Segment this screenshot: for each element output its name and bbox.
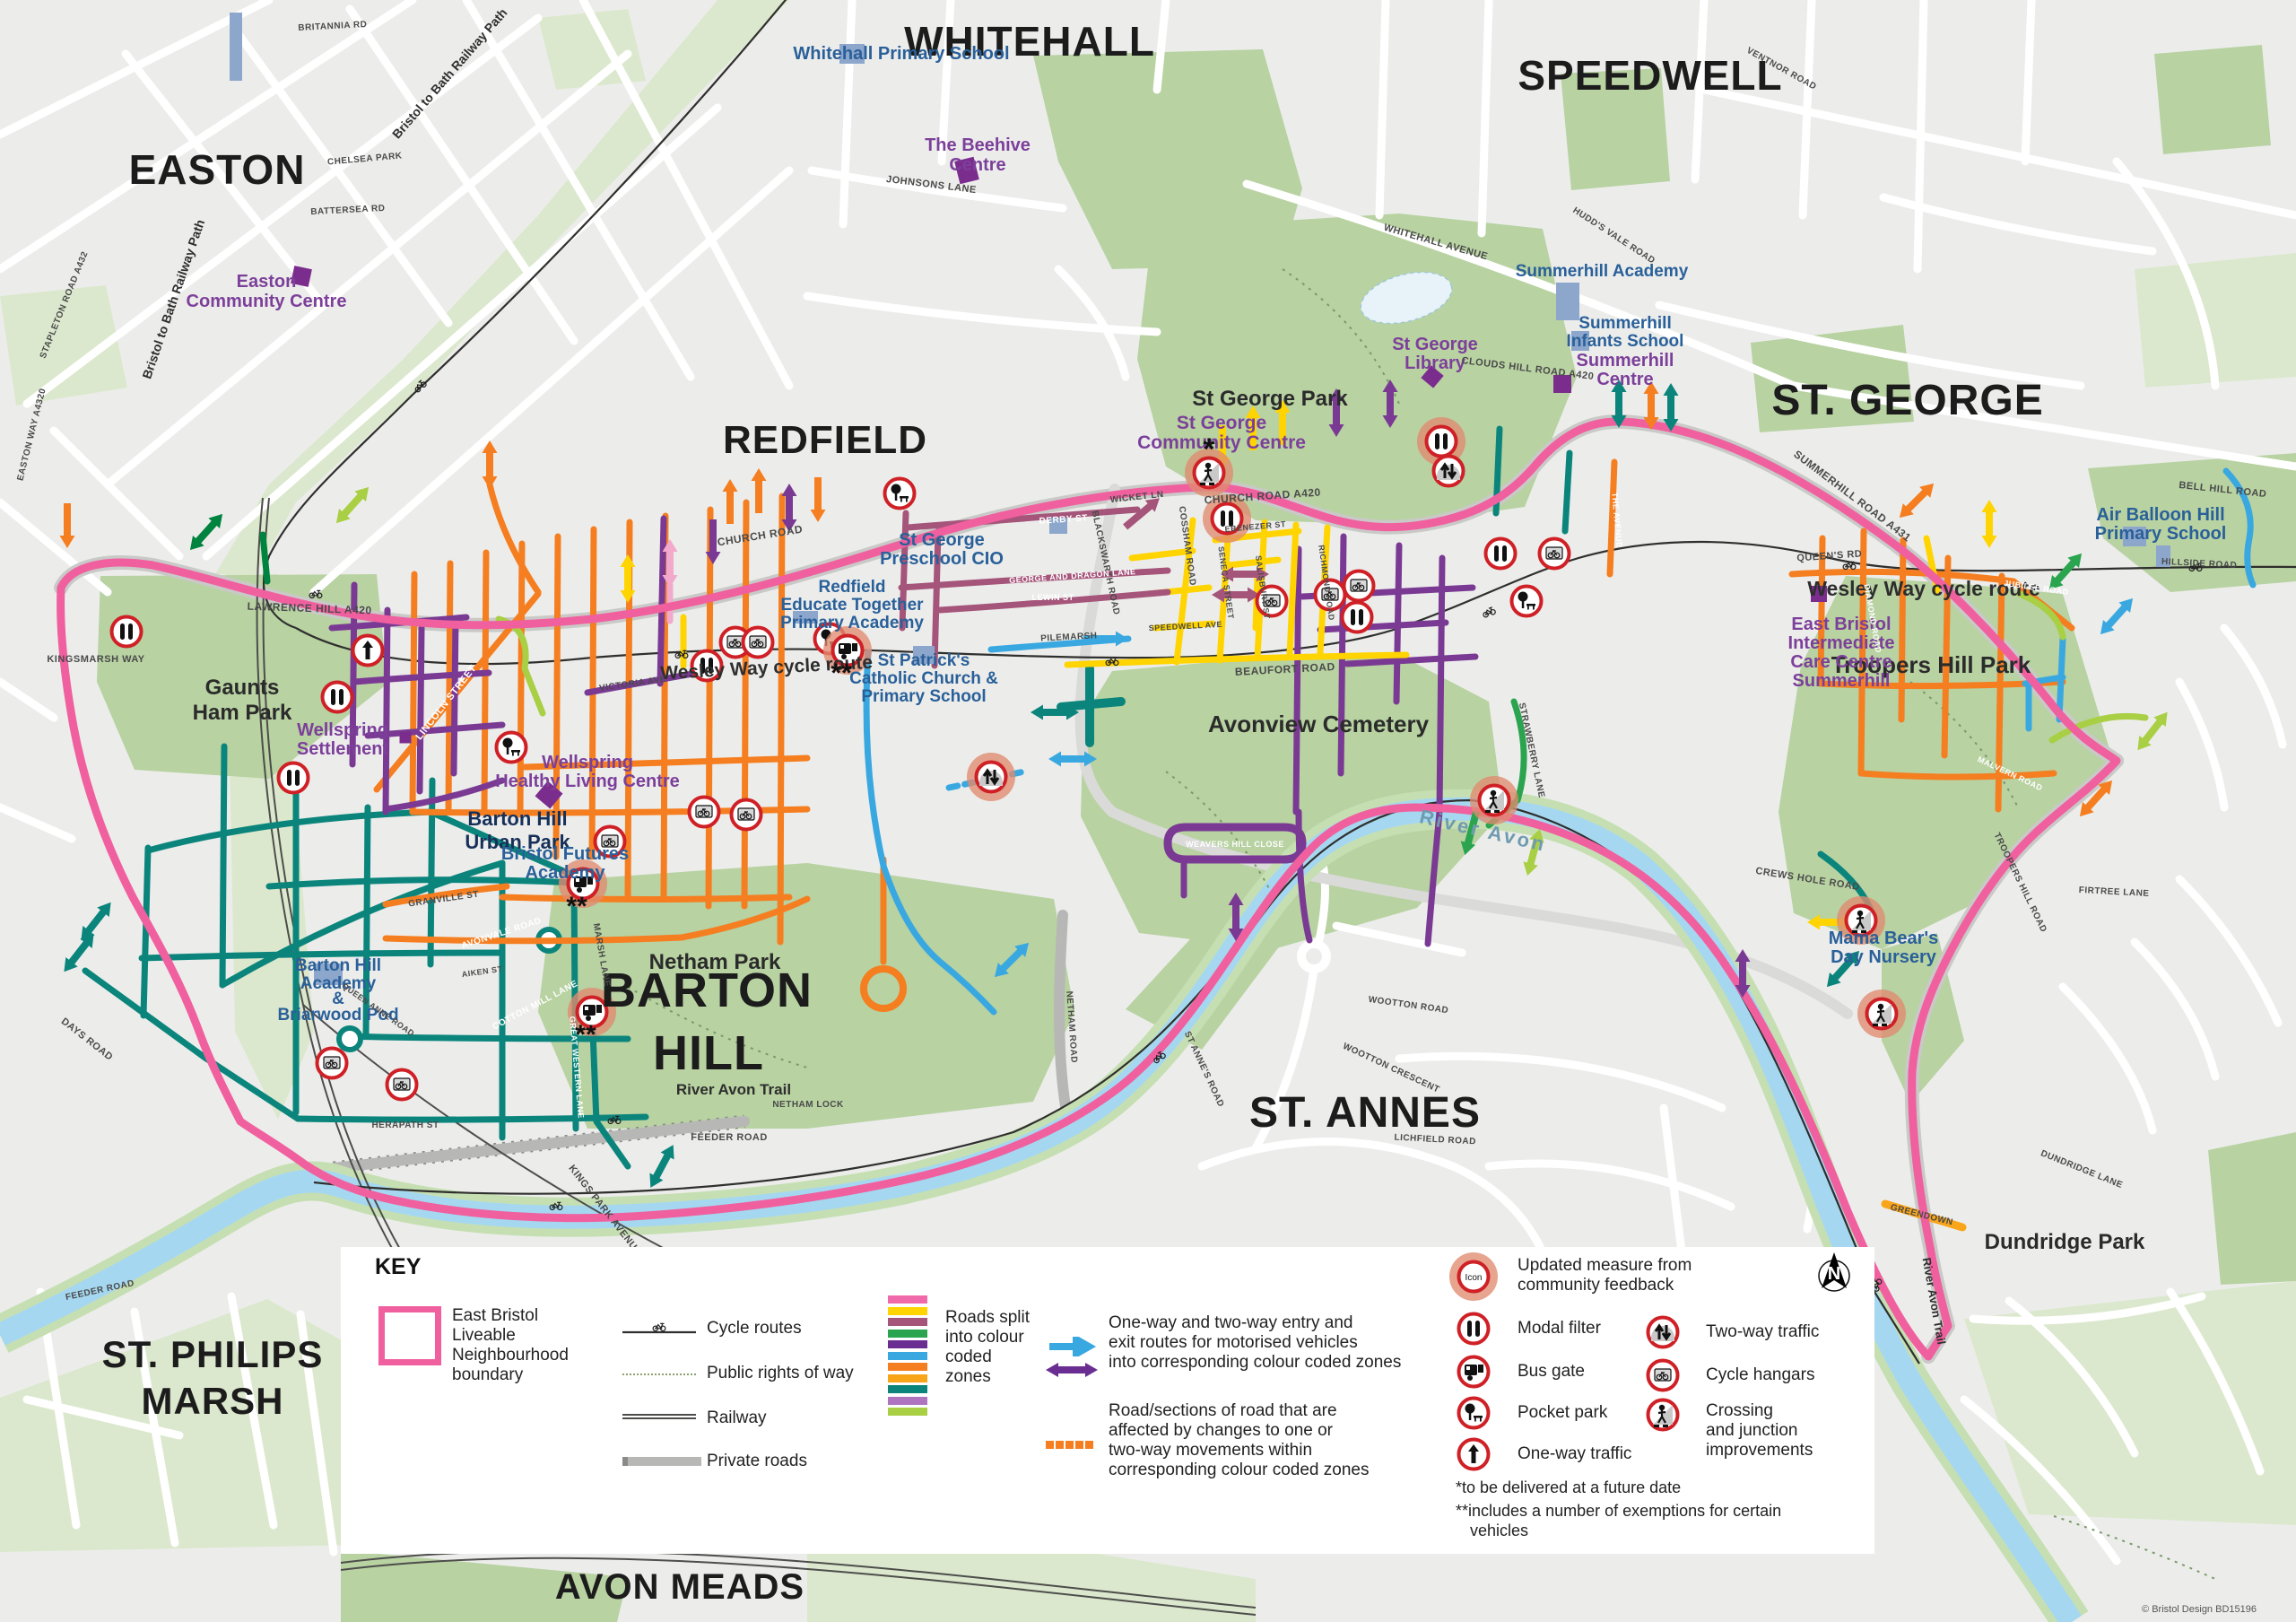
entry-line1: One-way and two-way entry and bbox=[1109, 1313, 1401, 1333]
boundary-line4: boundary bbox=[452, 1365, 569, 1385]
entry-line2: exit routes for motorised vehicles bbox=[1109, 1333, 1401, 1353]
label-netham-lock: NETHAM LOCK bbox=[772, 1100, 844, 1110]
label-st-george-park: St George Park bbox=[1192, 387, 1348, 411]
one-way-arrow-swatch bbox=[1046, 1337, 1098, 1356]
zone-swatch bbox=[888, 1374, 927, 1382]
label-st-philips: ST. PHILIPS bbox=[102, 1333, 324, 1375]
label-bristol-futures: Bristol Futures bbox=[501, 844, 629, 864]
map-stage: EASTONWHITEHALLSPEEDWELLREDFIELDST. GEOR… bbox=[0, 0, 2296, 1622]
entry-routes-label: One-way and two-way entry and exit route… bbox=[1109, 1313, 1401, 1373]
zone-swatch bbox=[888, 1307, 927, 1315]
modal-icon bbox=[323, 683, 352, 712]
boundary-line2: Liveable bbox=[452, 1326, 569, 1346]
label-library: Library bbox=[1405, 353, 1466, 373]
label-summerhill: Summerhill bbox=[1577, 351, 1674, 371]
building-marker bbox=[400, 732, 412, 744]
boundary-label: East Bristol Liveable Neighbourhood boun… bbox=[452, 1306, 569, 1385]
zones-label: Roads split into colour coded zones bbox=[945, 1308, 1030, 1387]
label-st-george: St George bbox=[1392, 335, 1478, 354]
label-weavers-hill-close: WEAVERS HILL CLOSE bbox=[1186, 840, 1284, 849]
label-wellspring: Wellspring bbox=[297, 720, 388, 740]
private-roads-label: Private roads bbox=[707, 1452, 807, 1471]
label-primary-school: Primary School bbox=[2095, 524, 2227, 544]
label-infants-school: Infants School bbox=[1567, 332, 1684, 351]
label-centre: Centre bbox=[949, 155, 1005, 175]
zone-swatch bbox=[888, 1397, 927, 1405]
prow-label: Public rights of way bbox=[707, 1364, 854, 1383]
pocket-icon bbox=[497, 733, 526, 763]
icon-label: Icon bbox=[1465, 1273, 1483, 1283]
hangar-icon bbox=[387, 1070, 417, 1100]
crossing-line1: Crossing bbox=[1706, 1401, 1813, 1421]
label-redfield: REDFIELD bbox=[723, 418, 927, 462]
boundary-swatch bbox=[378, 1306, 441, 1365]
label-mark: * bbox=[1203, 432, 1215, 467]
label-st-patrick-s: St Patrick's bbox=[878, 651, 970, 670]
compass-letter: N bbox=[1828, 1264, 1840, 1284]
boundary-line1: East Bristol bbox=[452, 1306, 569, 1326]
label-avonview-cemetery: Avonview Cemetery bbox=[1208, 711, 1430, 737]
label-preschool-cio: Preschool CIO bbox=[880, 549, 1004, 569]
modal-icon bbox=[1486, 539, 1516, 569]
building-marker bbox=[230, 13, 242, 81]
label-community-centre: Community Centre bbox=[1137, 432, 1306, 453]
two-way-traffic-label: Two-way traffic bbox=[1706, 1322, 1819, 1342]
label-ham-park: Ham Park bbox=[193, 701, 292, 725]
pocket-park-label: Pocket park bbox=[1518, 1403, 1607, 1423]
north-compass: N bbox=[1805, 1249, 1863, 1306]
label-summerhill: Summerhill bbox=[1793, 671, 1891, 691]
zone-swatch bbox=[888, 1352, 927, 1360]
bus-gate-label: Bus gate bbox=[1518, 1362, 1585, 1382]
label-academy: Academy bbox=[526, 863, 606, 883]
label-primary-academy: Primary Academy bbox=[780, 614, 924, 632]
label-netham-park: Netham Park bbox=[649, 950, 781, 974]
crossing-line2: and junction bbox=[1706, 1421, 1813, 1441]
cycle-hangars-icon bbox=[1645, 1357, 1681, 1393]
label-whitehall-primary-school: Whitehall Primary School bbox=[793, 44, 1009, 64]
updated-measure-label: Updated measure from community feedback bbox=[1518, 1256, 1692, 1295]
footnote-1: *to be delivered at a future date bbox=[1456, 1478, 1681, 1497]
cycle-hangars-label: Cycle hangars bbox=[1706, 1365, 1814, 1385]
modal-filter-label: Modal filter bbox=[1518, 1319, 1601, 1339]
label-care-centre: Care Centre bbox=[1790, 652, 1892, 672]
cycle-routes-label: Cycle routes bbox=[707, 1319, 802, 1339]
label-kingsmarsh-way: KINGSMARSH WAY bbox=[47, 654, 144, 665]
label-wellspring: Wellspring bbox=[542, 753, 633, 772]
zones-line4: zones bbox=[945, 1367, 1030, 1387]
affected-line3: two-way movements within bbox=[1109, 1441, 1369, 1461]
hangar-icon bbox=[1540, 539, 1570, 569]
crossing-icon bbox=[1867, 999, 1897, 1029]
label-mark: ** bbox=[566, 892, 587, 921]
crossing-line3: improvements bbox=[1706, 1441, 1813, 1461]
one-way-traffic-icon bbox=[1456, 1436, 1492, 1472]
pocket-icon bbox=[1512, 587, 1542, 616]
label-speedwell: SPEEDWELL bbox=[1518, 52, 1782, 99]
label-summerhill-academy: Summerhill Academy bbox=[1516, 262, 1689, 281]
zone-colour-swatches bbox=[888, 1295, 927, 1419]
label-mama-bear-s: Mama Bear's bbox=[1829, 929, 1939, 948]
prow-swatch bbox=[622, 1373, 696, 1375]
label-educate-together: Educate Together bbox=[780, 596, 924, 615]
zone-swatch bbox=[888, 1340, 927, 1348]
zone-swatch bbox=[888, 1385, 927, 1393]
label-community-centre: Community Centre bbox=[187, 292, 347, 311]
hangar-icon bbox=[690, 798, 719, 827]
updated-line2: community feedback bbox=[1518, 1276, 1692, 1295]
twoway-icon bbox=[1434, 457, 1464, 486]
railway-swatch bbox=[622, 1414, 696, 1419]
two-way-arrow-swatch bbox=[1044, 1360, 1100, 1380]
zone-swatch bbox=[888, 1330, 927, 1338]
pocket-park-icon bbox=[1456, 1395, 1492, 1431]
label-mark: ** bbox=[575, 1020, 596, 1050]
bus-gate-icon bbox=[1456, 1354, 1492, 1390]
label-settlement: Settlement bbox=[297, 739, 389, 759]
label-day-nursery: Day Nursery bbox=[1831, 947, 1937, 967]
building-marker bbox=[1556, 283, 1579, 320]
label-healthy-living-centre: Healthy Living Centre bbox=[495, 772, 680, 791]
updated-measure-icon: Icon bbox=[1447, 1250, 1500, 1304]
label-primary-school: Primary School bbox=[861, 687, 986, 706]
label-easton: Easton bbox=[237, 272, 297, 292]
zones-line2: into colour bbox=[945, 1328, 1030, 1347]
crossing-icon bbox=[1645, 1397, 1681, 1433]
affected-roads-label: Road/sections of road that are affected … bbox=[1109, 1401, 1369, 1480]
updated-line1: Updated measure from bbox=[1518, 1256, 1692, 1276]
label-lewin-st: LEWIN ST bbox=[1032, 593, 1074, 602]
darkgreen-zone bbox=[263, 535, 267, 581]
modal-icon bbox=[1427, 427, 1457, 457]
boundary-line3: Neighbourhood bbox=[452, 1346, 569, 1365]
label-st-george: ST. GEORGE bbox=[1771, 377, 2043, 424]
pocket-icon bbox=[885, 479, 915, 509]
entry-line3: into corresponding colour coded zones bbox=[1109, 1353, 1401, 1373]
label-air-balloon-hill: Air Balloon Hill bbox=[2096, 505, 2224, 525]
zone-swatch bbox=[888, 1318, 927, 1326]
hangar-icon bbox=[317, 1049, 347, 1078]
label-avon-meads: AVON MEADS bbox=[555, 1567, 804, 1607]
label-st-annes: ST. ANNES bbox=[1249, 1089, 1481, 1137]
label-bristol-design-bd15196: © Bristol Design BD15196 bbox=[2142, 1604, 2257, 1615]
hangar-icon bbox=[732, 800, 761, 830]
oneway-icon bbox=[353, 636, 383, 666]
footnote-2b: vehicles bbox=[1470, 1522, 1528, 1540]
label-easton: EASTON bbox=[129, 146, 306, 193]
label-st-george: St George bbox=[1177, 413, 1266, 433]
two-way-traffic-icon bbox=[1645, 1314, 1681, 1350]
affected-line4: corresponding colour coded zones bbox=[1109, 1461, 1369, 1480]
label-st-george: St George bbox=[899, 530, 985, 550]
label-marsh: MARSH bbox=[142, 1380, 284, 1422]
label-barton-hill: Barton Hill bbox=[467, 807, 567, 830]
label-the-beehive: The Beehive bbox=[925, 135, 1031, 155]
cycle-routes-swatch bbox=[621, 1316, 698, 1341]
label-redfield: Redfield bbox=[819, 578, 886, 597]
private-roads-swatch bbox=[622, 1457, 701, 1466]
label-mark: ** bbox=[831, 658, 852, 688]
zone-swatch bbox=[888, 1363, 927, 1371]
one-way-traffic-label: One-way traffic bbox=[1518, 1444, 1631, 1464]
twoway-icon bbox=[977, 763, 1006, 792]
crossing-icon bbox=[1480, 786, 1509, 815]
footnote-2a: **includes a number of exemptions for ce… bbox=[1456, 1502, 1781, 1521]
hangar-icon bbox=[744, 628, 773, 658]
hangar-icon bbox=[1344, 571, 1374, 601]
affected-line2: affected by changes to one or bbox=[1109, 1421, 1369, 1441]
modal-icon bbox=[1343, 603, 1372, 632]
label-dundridge-park: Dundridge Park bbox=[1985, 1230, 2145, 1254]
label-hill: HILL bbox=[653, 1026, 764, 1080]
label-feeder-road: FEEDER ROAD bbox=[691, 1132, 768, 1143]
label-centre: Centre bbox=[1596, 370, 1653, 389]
crossing-label: Crossing and junction improvements bbox=[1706, 1401, 1813, 1461]
zone-swatch bbox=[888, 1408, 927, 1416]
legend-panel: KEY East Bristol Liveable Neighbourhood … bbox=[341, 1247, 1874, 1554]
railway-label: Railway bbox=[707, 1408, 767, 1428]
modal-icon bbox=[279, 763, 309, 793]
zone-swatch bbox=[888, 1295, 927, 1304]
zones-line3: coded bbox=[945, 1347, 1030, 1367]
legend-title: KEY bbox=[375, 1254, 421, 1280]
zones-line1: Roads split bbox=[945, 1308, 1030, 1328]
modal-filter-icon bbox=[1456, 1311, 1492, 1347]
affected-line1: Road/sections of road that are bbox=[1109, 1401, 1369, 1421]
label-barton-hill: Barton Hill bbox=[295, 956, 381, 975]
label-herapath-st: HERAPATH ST bbox=[371, 1121, 439, 1130]
label-river-avon-trail: River Avon Trail bbox=[676, 1081, 791, 1098]
affected-road-swatch bbox=[1046, 1437, 1095, 1453]
label-summerhill: Summerhill bbox=[1578, 314, 1671, 333]
label-gaunts: Gaunts bbox=[205, 676, 280, 700]
modal-icon bbox=[112, 617, 142, 647]
